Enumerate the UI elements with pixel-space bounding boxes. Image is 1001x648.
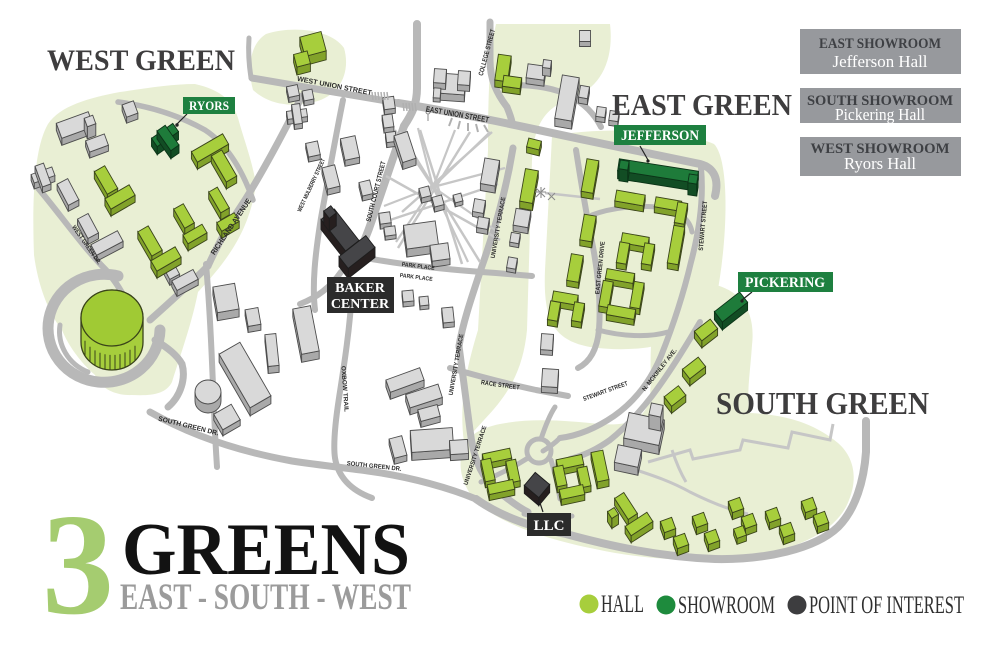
svg-text:RYORS: RYORS [189, 98, 229, 113]
svg-text:EAST SHOWROOM: EAST SHOWROOM [819, 36, 941, 52]
svg-text:BAKER: BAKER [335, 281, 386, 296]
svg-text:3: 3 [42, 485, 114, 645]
svg-text:POINT OF INTEREST: POINT OF INTEREST [809, 592, 964, 619]
svg-text:SHOWROOM: SHOWROOM [678, 592, 775, 619]
svg-text:CENTER: CENTER [331, 297, 390, 312]
svg-text:LLC: LLC [534, 518, 565, 534]
svg-text:WEST GREEN: WEST GREEN [47, 44, 235, 77]
svg-text:EAST - SOUTH - WEST: EAST - SOUTH - WEST [120, 577, 411, 618]
svg-text:Pickering Hall: Pickering Hall [835, 105, 925, 124]
svg-text:JEFFERSON: JEFFERSON [621, 128, 699, 144]
svg-text:HALL: HALL [601, 591, 644, 618]
svg-text:Ryors Hall: Ryors Hall [844, 154, 916, 173]
svg-text:SOUTH GREEN: SOUTH GREEN [716, 385, 929, 421]
svg-text:PICKERING: PICKERING [745, 275, 825, 291]
svg-text:Jefferson Hall: Jefferson Hall [833, 52, 928, 71]
svg-text:EAST GREEN: EAST GREEN [612, 87, 792, 122]
